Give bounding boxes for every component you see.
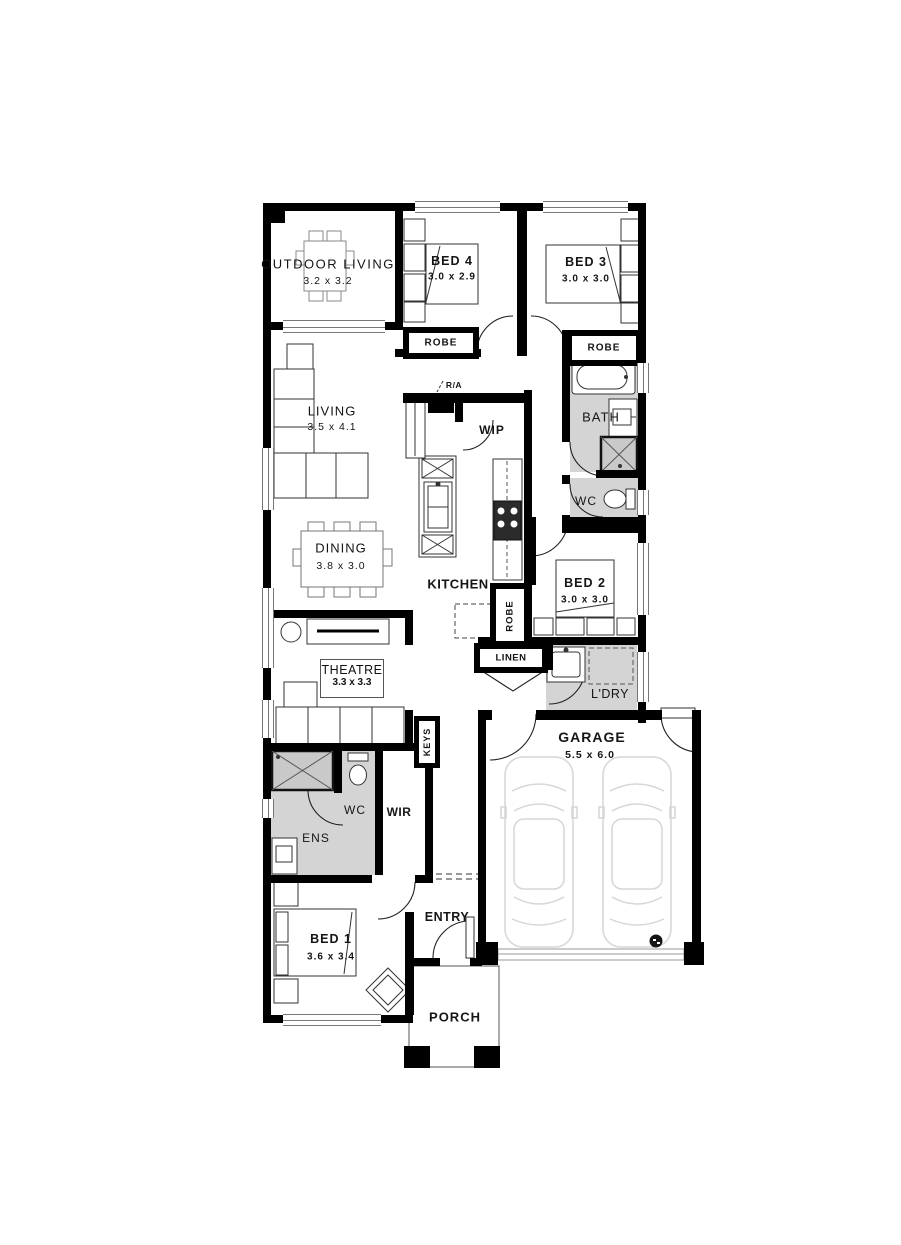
return-air-arrow bbox=[437, 381, 443, 392]
wall bbox=[517, 203, 527, 356]
wall bbox=[271, 610, 413, 618]
wall bbox=[638, 203, 646, 723]
utility-symbol-icon bbox=[650, 935, 663, 948]
ensuite-shower bbox=[272, 751, 333, 790]
room-label-entry: ENTRY bbox=[425, 910, 469, 924]
room-label-living: LIVING bbox=[308, 404, 357, 419]
fixtures-layer bbox=[0, 0, 901, 1245]
wall bbox=[536, 710, 662, 720]
garage-side-door-leaf bbox=[661, 708, 695, 718]
floor-plan: OUTDOOR LIVING 3.2 x 3.2 BED 4 3.0 x 2.9… bbox=[0, 0, 901, 1245]
wall bbox=[596, 470, 638, 478]
room-label-garage: GARAGE bbox=[558, 729, 625, 745]
window bbox=[637, 652, 649, 702]
annotation-return-air: R/A bbox=[446, 380, 462, 390]
window bbox=[637, 490, 649, 515]
wall bbox=[470, 958, 482, 966]
door-arc-garage-internal bbox=[490, 714, 536, 760]
ensuite-toilet bbox=[348, 753, 368, 785]
room-label-porch: PORCH bbox=[429, 1010, 481, 1025]
wall bbox=[478, 710, 486, 965]
passage-dashed-line bbox=[436, 874, 478, 879]
room-dims-bed2: 3.0 x 3.0 bbox=[561, 595, 609, 606]
wall bbox=[684, 942, 704, 965]
window bbox=[415, 201, 500, 213]
room-label-bath: BATH bbox=[582, 410, 620, 425]
room-dims-bed3: 3.0 x 3.0 bbox=[562, 274, 610, 285]
car-outline-left bbox=[501, 757, 577, 947]
door-arc-bed4 bbox=[477, 316, 513, 352]
storage-label-robe-bed2: ROBE bbox=[505, 600, 516, 631]
theatre-label-box: THEATRE 3.3 x 3.3 bbox=[320, 659, 384, 698]
room-dims-outdoor-living: 3.2 x 3.2 bbox=[303, 275, 352, 287]
door-arc-ensuite bbox=[308, 790, 343, 825]
window bbox=[262, 700, 274, 738]
room-dims-garage: 5.5 x 6.0 bbox=[565, 749, 615, 761]
room-label-bed2: BED 2 bbox=[564, 576, 606, 590]
room-dims-bed1: 3.6 x 3.4 bbox=[307, 952, 355, 963]
storage-label-robe-bed4: ROBE bbox=[425, 338, 458, 349]
room-label-ens: ENS bbox=[302, 831, 330, 845]
wall bbox=[405, 610, 413, 645]
storage-label-linen: LINEN bbox=[496, 653, 527, 664]
window bbox=[262, 588, 274, 668]
window bbox=[262, 448, 274, 510]
wall bbox=[403, 393, 530, 403]
entry-rug bbox=[366, 968, 410, 1012]
wc-toilet bbox=[604, 489, 635, 509]
return-air-duct bbox=[428, 393, 454, 413]
room-label-bed1: BED 1 bbox=[310, 932, 352, 946]
bed4-furniture bbox=[404, 219, 478, 322]
wall bbox=[455, 400, 463, 422]
wall bbox=[570, 517, 638, 525]
wall bbox=[415, 875, 433, 883]
window bbox=[283, 1014, 381, 1026]
room-label-bed4: BED 4 bbox=[431, 254, 473, 268]
room-label-kitchen: KITCHEN bbox=[427, 577, 488, 592]
room-dims-theatre: 3.3 x 3.3 bbox=[321, 677, 383, 688]
wall bbox=[562, 525, 638, 533]
room-dims-dining: 3.8 x 3.0 bbox=[313, 560, 368, 572]
wall bbox=[562, 475, 570, 484]
porch-pier bbox=[404, 1046, 430, 1068]
room-label-dining: DINING bbox=[312, 541, 370, 556]
bath-shower bbox=[601, 437, 637, 472]
wall bbox=[334, 751, 342, 793]
wall bbox=[405, 912, 414, 1015]
storage-label-robe-bed3: ROBE bbox=[588, 343, 621, 354]
room-label-wir: WIR bbox=[387, 805, 412, 819]
room-label-wc-ens: WC bbox=[344, 803, 366, 817]
wall bbox=[692, 710, 701, 965]
linen-doors bbox=[482, 671, 544, 691]
room-label-laundry: L'DRY bbox=[591, 687, 629, 701]
window bbox=[262, 799, 274, 818]
wall bbox=[271, 875, 372, 883]
porch-pier bbox=[474, 1046, 500, 1068]
room-label-outdoor-living: OUTDOOR LIVING bbox=[261, 257, 395, 272]
room-label-theatre: THEATRE bbox=[321, 663, 383, 677]
room-dims-bed4: 3.0 x 2.9 bbox=[428, 272, 476, 283]
kitchen-island bbox=[419, 456, 456, 557]
storage-label-keys: KEYS bbox=[422, 728, 432, 757]
laundry-appliance-space bbox=[589, 648, 633, 684]
car-outline-right bbox=[599, 757, 675, 947]
wall bbox=[425, 751, 433, 875]
wall bbox=[375, 751, 383, 875]
room-label-wip: WIP bbox=[479, 423, 505, 437]
window bbox=[637, 363, 649, 393]
window bbox=[543, 201, 628, 213]
bed3-furniture bbox=[546, 219, 642, 323]
wall bbox=[271, 743, 433, 751]
ensuite-vanity bbox=[272, 838, 297, 874]
room-dims-living: 3.5 x 4.1 bbox=[307, 421, 356, 433]
room-label-wc-main: WC bbox=[575, 494, 597, 508]
window bbox=[637, 543, 649, 615]
door-arc-entry bbox=[433, 921, 470, 958]
room-label-bed3: BED 3 bbox=[565, 255, 607, 269]
window-slider bbox=[283, 320, 385, 333]
wall bbox=[395, 203, 403, 330]
